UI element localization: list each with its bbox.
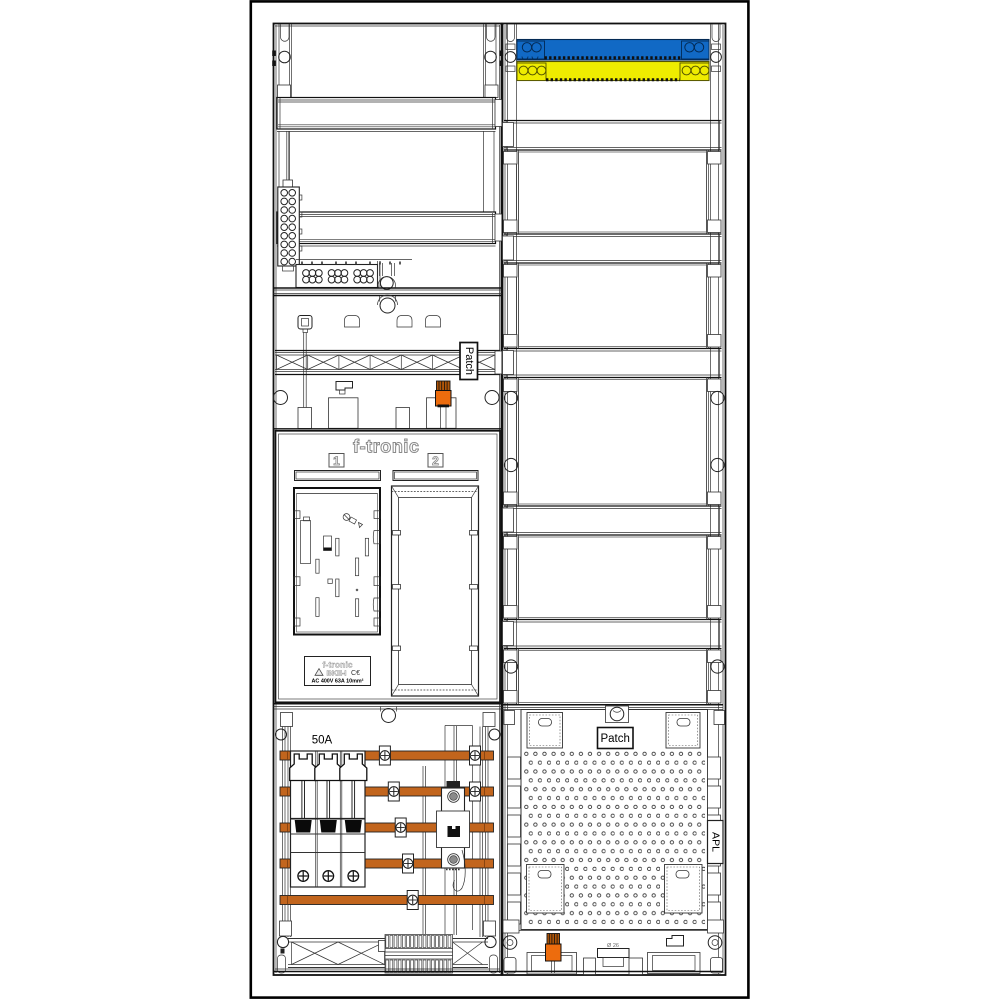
svg-text:f-tronic: f-tronic: [353, 437, 419, 457]
svg-text:50A: 50A: [312, 735, 333, 747]
svg-text:BKE-I: BKE-I: [327, 668, 347, 677]
svg-text:AC 400V 63A 10mm²: AC 400V 63A 10mm²: [312, 679, 364, 685]
svg-text:1: 1: [333, 454, 340, 468]
svg-text:C€: C€: [351, 670, 360, 677]
svg-text:2: 2: [432, 454, 439, 468]
svg-text:Patch: Patch: [463, 347, 475, 375]
svg-text:APL: APL: [709, 832, 721, 852]
svg-text:Patch: Patch: [600, 733, 629, 745]
